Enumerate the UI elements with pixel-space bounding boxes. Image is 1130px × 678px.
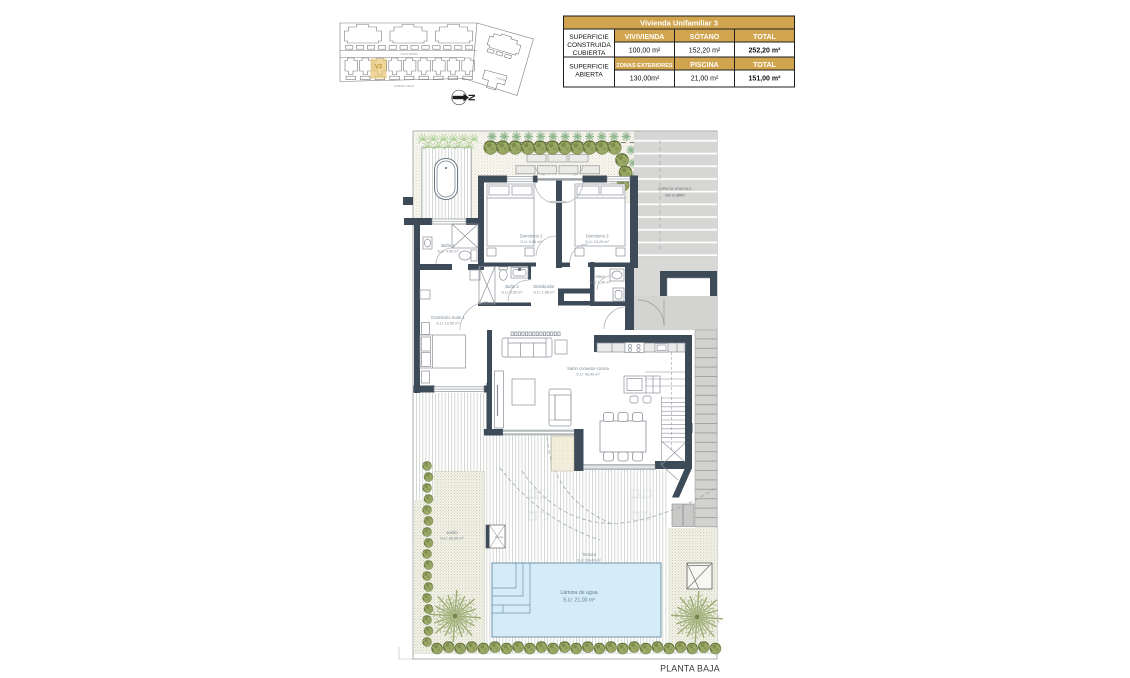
svg-text:S.U: 33,60 m²: S.U: 33,60 m² (440, 537, 464, 541)
svg-text:VIVIVIENDA: VIVIVIENDA (625, 34, 665, 41)
svg-text:S.U: 1,68 m²: S.U: 1,68 m² (533, 291, 555, 295)
svg-text:ESPACIO VEHICULO: ESPACIO VEHICULO (658, 187, 691, 191)
svg-text:SUPERFICIE: SUPERFICIE (569, 64, 609, 71)
svg-text:Ducha: Ducha (495, 535, 504, 539)
svg-text:S.U: 1,96 m²: S.U: 1,96 m² (589, 281, 611, 285)
svg-text:S.U: 10,20 m²: S.U: 10,20 m² (585, 240, 609, 244)
svg-text:S.U: 12,50 m²: S.U: 12,50 m² (436, 322, 460, 326)
svg-text:CUBIERTA: CUBIERTA (573, 50, 606, 57)
svg-text:SÓTANO: SÓTANO (690, 32, 720, 41)
svg-text:Jardín: Jardín (446, 530, 458, 535)
svg-text:CONSTRUIDA: CONSTRUIDA (567, 42, 611, 49)
svg-text:100,00 m²: 100,00 m² (629, 48, 661, 55)
svg-text:SUPERFICIE: SUPERFICIE (569, 34, 609, 41)
svg-text:PISCINA: PISCINA (690, 62, 718, 69)
svg-text:S.U: 3,50 m²: S.U: 3,50 m² (501, 291, 523, 295)
svg-text:152,20 m²: 152,20 m² (689, 48, 721, 55)
svg-text:S.U: 21,00 m²: S.U: 21,00 m² (563, 598, 595, 604)
svg-text:VIA INTERNA: VIA INTERNA (400, 52, 418, 56)
svg-text:Dormitorio 2: Dormitorio 2 (520, 234, 543, 239)
svg-text:ABIERTA: ABIERTA (575, 72, 603, 79)
svg-text:TOTAL: TOTAL (753, 62, 776, 69)
svg-text:Dormitorio Suite 1: Dormitorio Suite 1 (431, 315, 465, 320)
svg-text:TOTAL: TOTAL (753, 34, 776, 41)
svg-text:Vivienda Unifamiliar 3: Vivienda Unifamiliar 3 (640, 19, 718, 28)
svg-text:Baño 2: Baño 2 (505, 284, 519, 289)
svg-text:Terraza: Terraza (582, 552, 597, 557)
svg-text:S.U: 9,86 m²: S.U: 9,86 m² (520, 240, 542, 244)
svg-text:S.U: 39,40 m²: S.U: 39,40 m² (577, 559, 601, 563)
svg-text:ZONAS EXTERIORES: ZONAS EXTERIORES (616, 63, 673, 69)
svg-text:Salón comedor-cocina: Salón comedor-cocina (567, 366, 609, 371)
svg-text:CAMINO VIEJO: CAMINO VIEJO (394, 84, 415, 88)
svg-text:Baño 1: Baño 1 (441, 243, 455, 248)
svg-text:SIN CUBRIR: SIN CUBRIR (665, 194, 685, 198)
svg-text:21,00 m²: 21,00 m² (691, 76, 719, 83)
svg-text:PLANTA BAJA: PLANTA BAJA (660, 664, 720, 674)
svg-text:130,00m²: 130,00m² (630, 76, 660, 83)
svg-text:V3: V3 (375, 65, 383, 71)
svg-text:252,20 m²: 252,20 m² (749, 48, 782, 55)
svg-text:S.U: 42,40 m²: S.U: 42,40 m² (576, 373, 600, 377)
svg-text:Aseo: Aseo (595, 274, 605, 279)
svg-text:Distribuidor: Distribuidor (533, 284, 555, 289)
svg-text:Lámina de agua: Lámina de agua (560, 590, 597, 596)
svg-text:151,00 m²: 151,00 m² (749, 76, 782, 83)
svg-text:S.U: 4,00 m²: S.U: 4,00 m² (437, 250, 459, 254)
svg-text:Dormitorio 3: Dormitorio 3 (586, 234, 609, 239)
svg-text:N: N (466, 94, 477, 101)
